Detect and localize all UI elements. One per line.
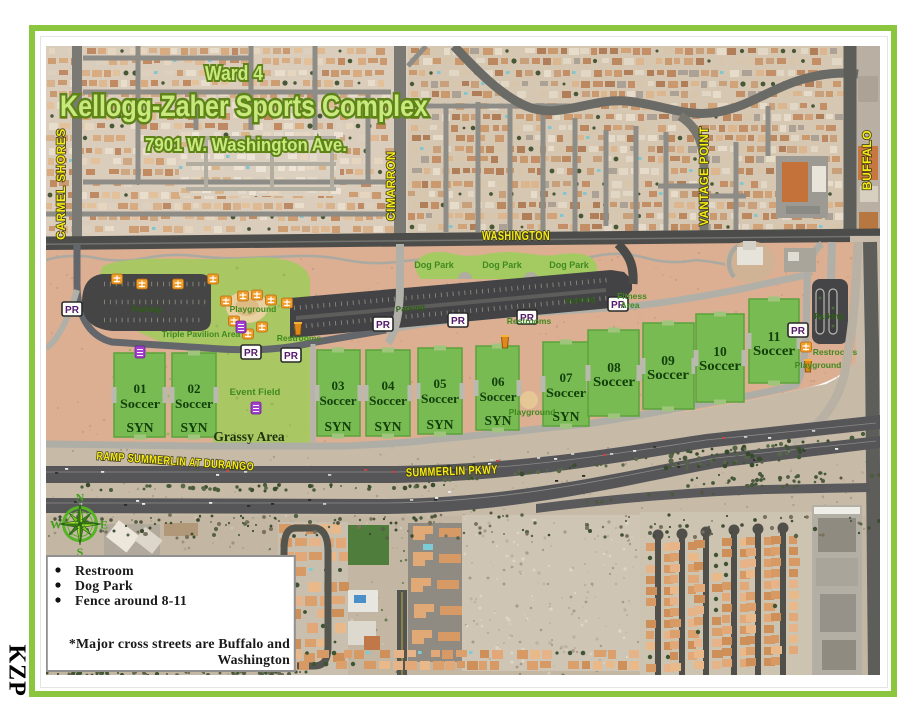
svg-text:W: W bbox=[50, 518, 62, 532]
svg-text:Soccer: Soccer bbox=[175, 396, 213, 411]
svg-text:SYN: SYN bbox=[126, 420, 153, 435]
svg-text:Grassy Area: Grassy Area bbox=[213, 429, 285, 444]
svg-text:Washington: Washington bbox=[217, 652, 290, 667]
svg-text:Event Field: Event Field bbox=[230, 387, 281, 398]
svg-text:07: 07 bbox=[560, 370, 574, 385]
svg-text:CIMARRON: CIMARRON bbox=[384, 151, 398, 221]
svg-text:PR: PR bbox=[451, 316, 466, 327]
svg-text:11: 11 bbox=[768, 329, 781, 344]
svg-text:Soccer: Soccer bbox=[593, 374, 635, 389]
svg-text:Kellogg-Zaher Sports Complex: Kellogg-Zaher Sports Complex bbox=[60, 90, 428, 123]
svg-text:Dog Park: Dog Park bbox=[75, 578, 133, 593]
svg-text:Soccer: Soccer bbox=[699, 358, 741, 373]
svg-text:Soccer: Soccer bbox=[546, 385, 586, 400]
svg-text:Soccer: Soccer bbox=[647, 367, 689, 382]
svg-text:Dog Park: Dog Park bbox=[549, 260, 590, 270]
svg-text:Parking: Parking bbox=[814, 312, 843, 321]
svg-text:10: 10 bbox=[713, 344, 727, 359]
svg-text:E: E bbox=[100, 518, 108, 532]
svg-text:N: N bbox=[76, 491, 85, 505]
svg-text:03: 03 bbox=[332, 378, 346, 393]
svg-text:Ward 4: Ward 4 bbox=[205, 63, 264, 85]
svg-text:SYN: SYN bbox=[374, 419, 401, 434]
svg-text:PR: PR bbox=[284, 351, 299, 362]
svg-text:WASHINGTON: WASHINGTON bbox=[482, 229, 550, 243]
svg-text:Soccer: Soccer bbox=[480, 389, 517, 404]
svg-text:06: 06 bbox=[492, 374, 506, 389]
svg-text:VANTAGE POINT: VANTAGE POINT bbox=[699, 126, 711, 225]
svg-text:SYN: SYN bbox=[552, 409, 579, 424]
svg-text:Area: Area bbox=[621, 300, 640, 310]
svg-text:04: 04 bbox=[382, 378, 396, 393]
svg-text:SYN: SYN bbox=[324, 419, 351, 434]
svg-text:Restrooms: Restrooms bbox=[277, 333, 322, 343]
svg-text:Restroom: Restroom bbox=[75, 563, 134, 578]
svg-text:Soccer: Soccer bbox=[753, 343, 795, 358]
svg-text:SYN: SYN bbox=[180, 420, 207, 435]
svg-text:PR: PR bbox=[244, 348, 259, 359]
svg-text:PR: PR bbox=[376, 320, 391, 331]
svg-text:Dog Park: Dog Park bbox=[482, 260, 523, 270]
svg-text:Soccer: Soccer bbox=[320, 393, 357, 408]
svg-text:PR: PR bbox=[65, 305, 80, 316]
svg-text:08: 08 bbox=[607, 360, 621, 375]
svg-text:05: 05 bbox=[434, 376, 448, 391]
svg-text:Restrooms: Restrooms bbox=[507, 316, 552, 326]
svg-text:Playground: Playground bbox=[795, 360, 842, 370]
svg-text:02: 02 bbox=[188, 381, 201, 396]
svg-text:Parking: Parking bbox=[132, 305, 161, 314]
svg-text:Soccer: Soccer bbox=[421, 391, 459, 406]
svg-text:CARMEL SHORES: CARMEL SHORES bbox=[54, 128, 68, 240]
svg-text:09: 09 bbox=[661, 353, 675, 368]
svg-text:Soccer: Soccer bbox=[120, 396, 160, 411]
svg-text:Dog Park: Dog Park bbox=[414, 260, 455, 270]
svg-text:7901 W. Washington Ave.: 7901 W. Washington Ave. bbox=[145, 135, 347, 155]
svg-text:SYN: SYN bbox=[426, 417, 453, 432]
svg-text:Playground: Playground bbox=[230, 304, 277, 314]
svg-text:Fence around 8-11: Fence around 8-11 bbox=[75, 593, 187, 608]
svg-text:Soccer: Soccer bbox=[369, 393, 407, 408]
svg-text:BUFFALO: BUFFALO bbox=[860, 130, 874, 190]
svg-text:01: 01 bbox=[134, 381, 147, 396]
svg-text:*Major cross streets are Buffa: *Major cross streets are Buffalo and bbox=[69, 636, 290, 651]
svg-text:Triple Pavilion Area: Triple Pavilion Area bbox=[162, 329, 241, 339]
svg-text:Playground: Playground bbox=[509, 407, 556, 417]
svg-text:PR: PR bbox=[791, 326, 806, 337]
